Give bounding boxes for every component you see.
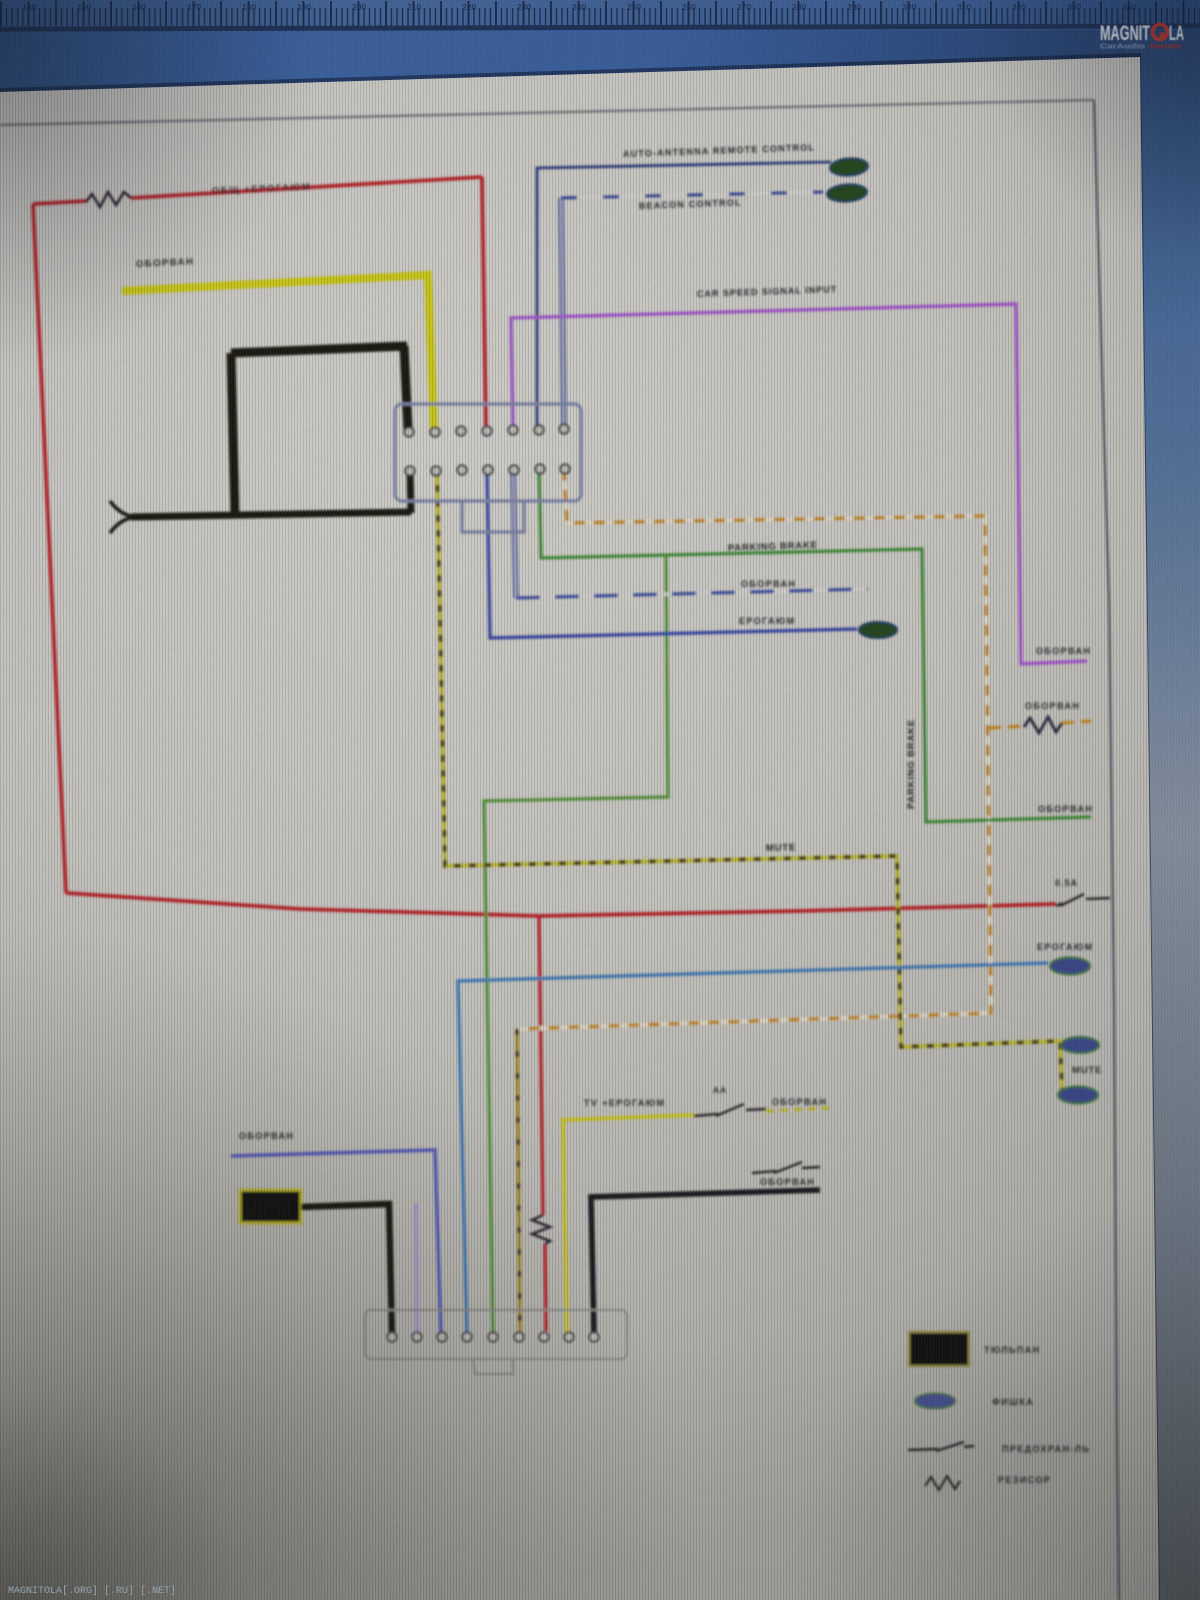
svg-text:MAGNITOLA[.ORG] [.RU] [.NET]: MAGNITOLA[.ORG] [.RU] [.NET]: [8, 1585, 176, 1597]
